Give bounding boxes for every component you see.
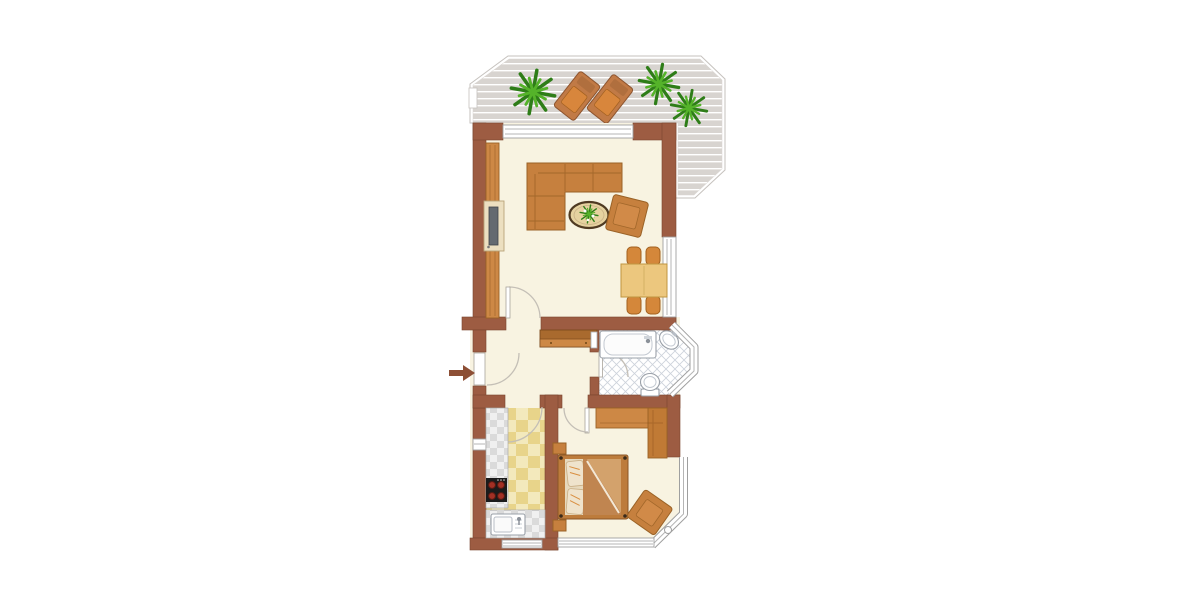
floor-plan-canvas — [0, 0, 1200, 600]
floor-plan — [0, 0, 1200, 600]
dining-chair — [646, 247, 660, 265]
nightstand — [553, 520, 566, 531]
duvet — [583, 459, 621, 515]
wall — [473, 395, 505, 408]
dining-chair — [646, 296, 660, 314]
wall — [662, 123, 676, 237]
kitchen-sink — [491, 514, 525, 535]
toilet — [641, 374, 660, 397]
tv-screen — [489, 207, 498, 245]
wall — [473, 408, 486, 538]
kitchen-left-window — [473, 439, 486, 450]
double-bed — [558, 455, 628, 519]
railing-gate — [469, 88, 477, 108]
nightstand — [553, 443, 566, 454]
living-room-top-window — [503, 125, 633, 138]
wall-mirror — [591, 332, 597, 348]
bedroom-bottom-window — [558, 538, 654, 547]
wall — [462, 317, 506, 330]
wall — [588, 395, 680, 408]
stove — [486, 478, 507, 502]
wall — [473, 330, 486, 352]
pillow — [566, 460, 586, 487]
wall — [541, 317, 676, 330]
hallway-sideboard — [540, 330, 597, 347]
coffee-table — [570, 202, 609, 228]
wall — [473, 123, 503, 140]
dining-chair — [627, 247, 641, 265]
pillow — [566, 488, 585, 514]
wall — [667, 395, 680, 457]
bathtub — [600, 331, 656, 358]
kitchen-bottom-window — [502, 540, 542, 548]
dining-chair — [627, 296, 641, 314]
corner-post — [665, 527, 672, 534]
wall — [590, 377, 599, 395]
